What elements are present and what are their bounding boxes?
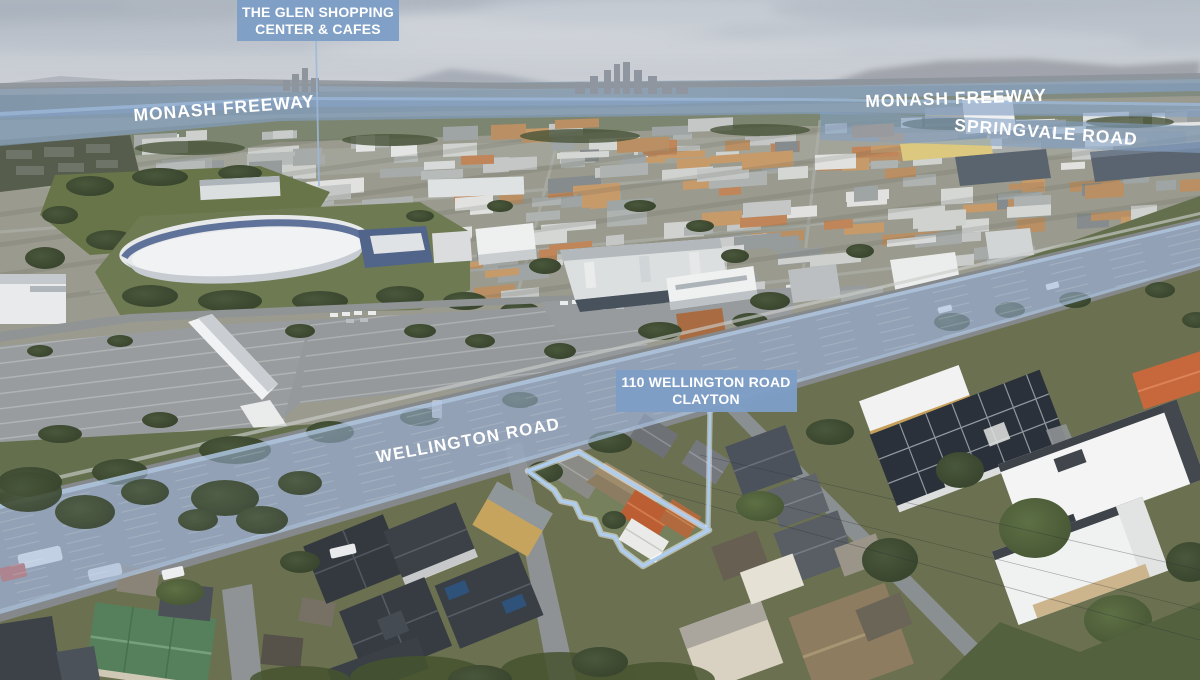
svg-text:110 WELLINGTON ROAD: 110 WELLINGTON ROAD [621,374,790,390]
svg-text:THE GLEN SHOPPING: THE GLEN SHOPPING [242,4,394,20]
svg-text:CLAYTON: CLAYTON [672,391,740,407]
svg-text:CENTER & CAFES: CENTER & CAFES [255,21,381,37]
